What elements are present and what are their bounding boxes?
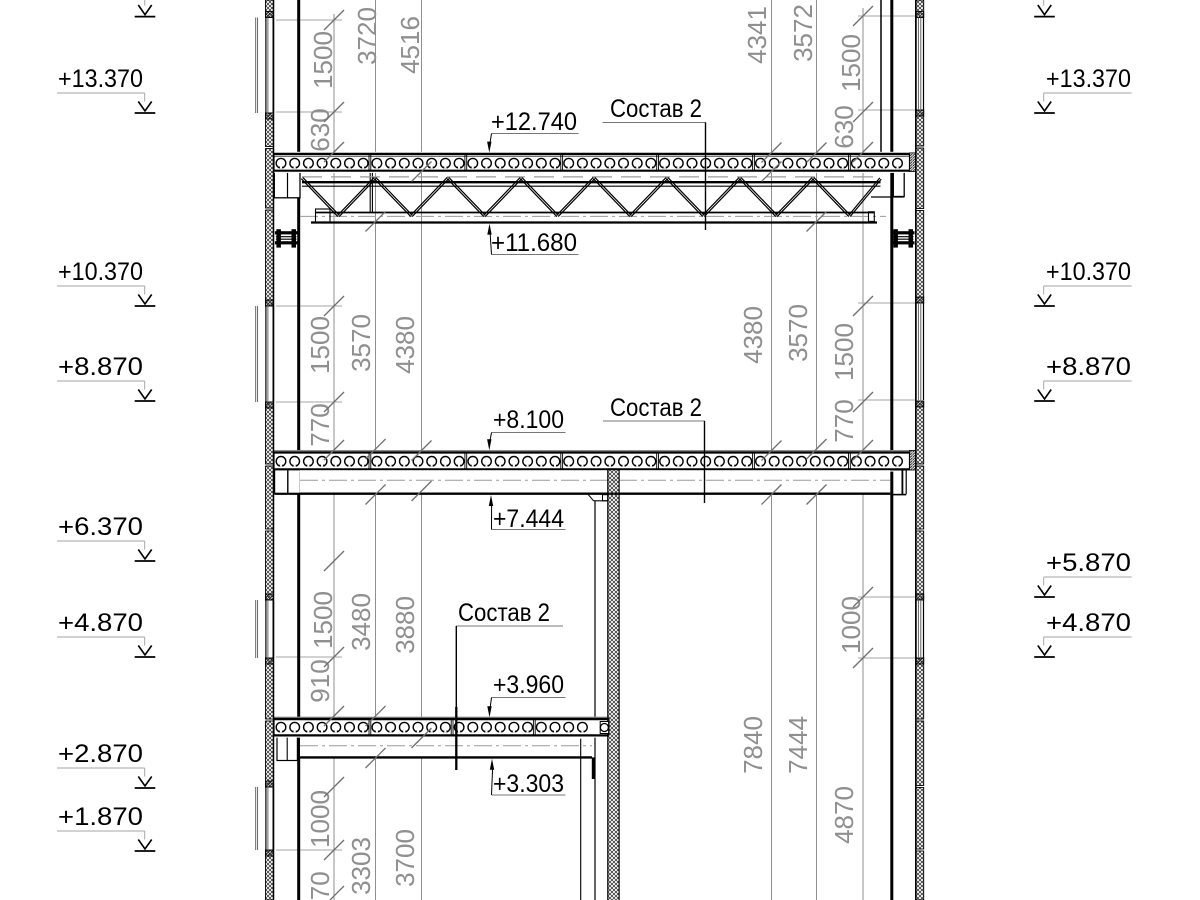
svg-text:+12.740: +12.740 bbox=[491, 108, 577, 136]
svg-text:+2.870: +2.870 bbox=[58, 740, 143, 768]
svg-text:3880: 3880 bbox=[390, 596, 420, 654]
svg-text:+5.870: +5.870 bbox=[1046, 549, 1131, 577]
svg-text:4380: 4380 bbox=[738, 306, 768, 364]
svg-text:3572: 3572 bbox=[788, 4, 818, 62]
svg-text:1500: 1500 bbox=[308, 31, 338, 89]
svg-text:1000: 1000 bbox=[305, 790, 335, 848]
svg-text:7840: 7840 bbox=[738, 716, 768, 774]
svg-text:1000: 1000 bbox=[836, 596, 866, 654]
svg-text:Состав 2: Состав 2 bbox=[610, 394, 702, 422]
svg-text:1500: 1500 bbox=[836, 34, 866, 92]
svg-text:770: 770 bbox=[305, 403, 335, 446]
svg-text:+3.303: +3.303 bbox=[493, 770, 564, 798]
svg-text:1500: 1500 bbox=[305, 316, 335, 374]
svg-text:+7.444: +7.444 bbox=[493, 505, 564, 533]
svg-text:Состав 2: Состав 2 bbox=[610, 95, 702, 123]
svg-text:+8.100: +8.100 bbox=[493, 406, 564, 434]
svg-text:3720: 3720 bbox=[352, 7, 382, 65]
svg-text:1500: 1500 bbox=[829, 323, 859, 381]
svg-text:+10.370: +10.370 bbox=[58, 258, 143, 286]
svg-text:+11.680: +11.680 bbox=[491, 229, 577, 257]
svg-text:+1.870: +1.870 bbox=[58, 803, 143, 831]
svg-text:3480: 3480 bbox=[346, 593, 376, 651]
svg-text:4516: 4516 bbox=[395, 16, 425, 74]
svg-text:7444: 7444 bbox=[783, 716, 813, 774]
svg-text:910: 910 bbox=[305, 659, 335, 702]
svg-text:+4.870: +4.870 bbox=[58, 609, 143, 637]
svg-text:+10.370: +10.370 bbox=[1046, 258, 1131, 286]
svg-text:3570: 3570 bbox=[346, 314, 376, 372]
svg-text:+8.870: +8.870 bbox=[58, 353, 143, 381]
svg-text:3700: 3700 bbox=[390, 829, 420, 887]
svg-text:3303: 3303 bbox=[346, 837, 376, 895]
svg-text:+6.370: +6.370 bbox=[58, 513, 143, 541]
svg-text:Состав 2: Состав 2 bbox=[458, 599, 550, 627]
svg-text:770: 770 bbox=[829, 399, 859, 442]
svg-text:+4.870: +4.870 bbox=[1046, 609, 1131, 637]
svg-text:770: 770 bbox=[305, 871, 335, 900]
svg-text:4380: 4380 bbox=[390, 316, 420, 374]
svg-text:+13.370: +13.370 bbox=[1046, 65, 1131, 93]
svg-text:+3.960: +3.960 bbox=[493, 671, 564, 699]
svg-text:+8.870: +8.870 bbox=[1046, 353, 1131, 381]
svg-text:4870: 4870 bbox=[829, 786, 859, 844]
svg-text:1500: 1500 bbox=[308, 591, 338, 649]
svg-text:4341: 4341 bbox=[742, 6, 772, 64]
svg-text:3570: 3570 bbox=[783, 304, 813, 362]
svg-text:630: 630 bbox=[829, 105, 859, 148]
svg-text:+13.370: +13.370 bbox=[58, 65, 143, 93]
